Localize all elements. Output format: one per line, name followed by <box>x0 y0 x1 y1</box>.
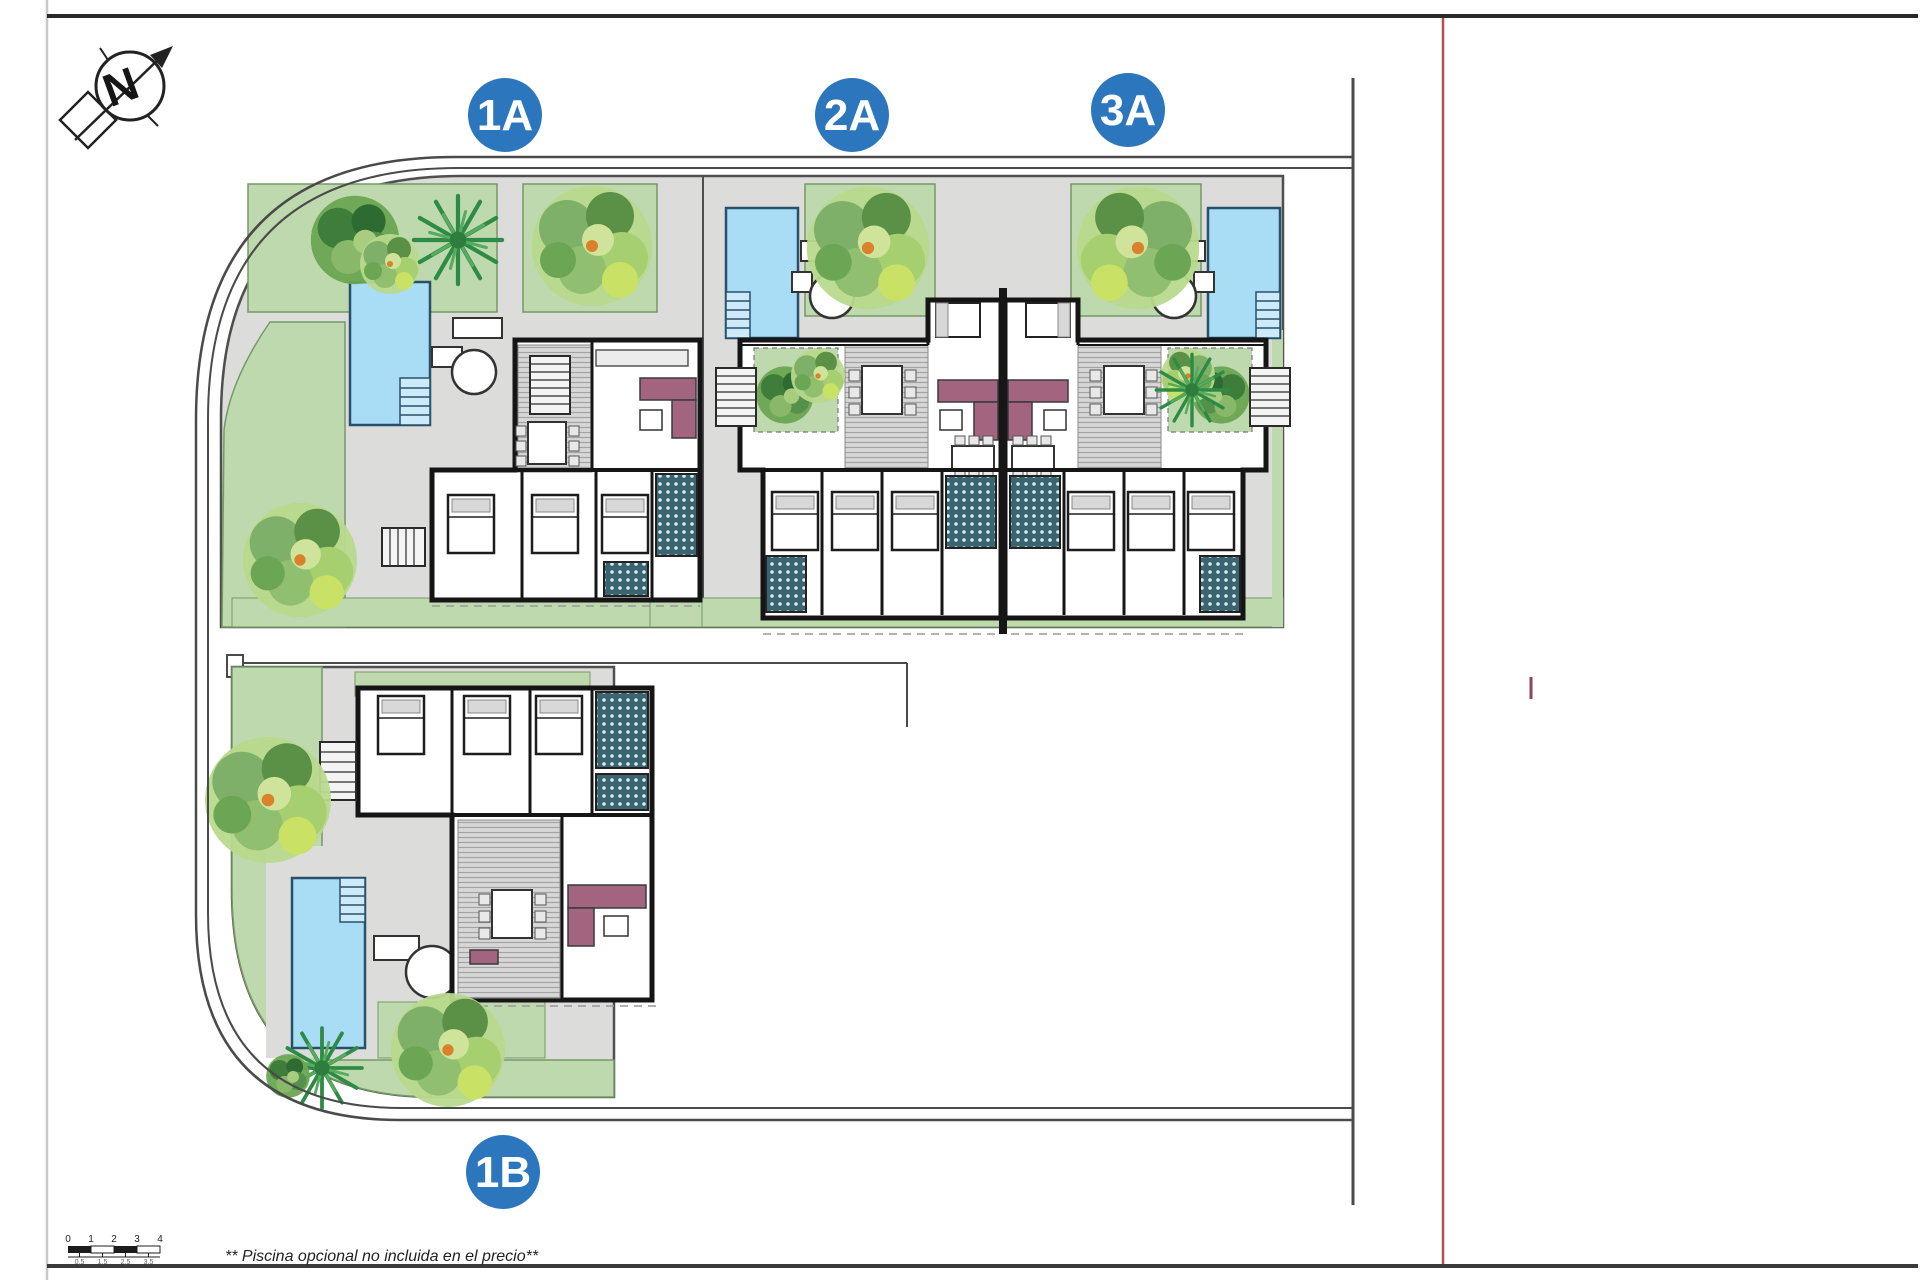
party-wall <box>999 288 1007 634</box>
bed <box>532 495 578 553</box>
round-table <box>452 350 496 394</box>
sofa <box>640 378 696 400</box>
bed <box>448 495 494 553</box>
coffee-table <box>604 916 628 936</box>
bathroom <box>656 474 697 556</box>
bathroom <box>596 692 648 768</box>
unit-badge-1b: 1B <box>466 1135 540 1209</box>
sofa <box>672 400 696 438</box>
tree-icon <box>391 993 505 1107</box>
scale-minor-label: 1,5 <box>98 1259 108 1266</box>
scale-label: 2 <box>111 1234 117 1245</box>
unit-badge-label: 1B <box>475 1148 531 1197</box>
unit-badge-3a: 3A <box>1091 73 1165 147</box>
scale-bar: 0 1 2 3 4 0,5 1,5 2,5 3,5 <box>65 1234 163 1266</box>
scale-label: 1 <box>88 1234 94 1245</box>
scale-label: 4 <box>157 1234 163 1245</box>
disclaimer-note: ** Piscina opcional no incluida en el pr… <box>225 1248 539 1265</box>
site-plan-page: N <box>0 0 1920 1280</box>
tree-icon <box>243 503 357 617</box>
stairs <box>530 356 570 414</box>
unit-badge-1a: 1A <box>468 78 542 152</box>
scale-label: 0 <box>65 1234 71 1245</box>
tree-icon <box>360 234 420 294</box>
bed <box>602 495 648 553</box>
north-arrow-icon: N <box>60 46 173 148</box>
sofa <box>568 908 594 946</box>
site-plan-canvas: N <box>0 0 1920 1280</box>
pool-steps <box>400 378 430 425</box>
sofa <box>568 885 646 908</box>
scale-minor-label: 0,5 <box>75 1259 85 1266</box>
unit-badge-label: 3A <box>1100 86 1156 135</box>
entry-steps <box>382 528 425 566</box>
unit-badge-2a: 2A <box>815 78 889 152</box>
sun-lounger <box>453 318 502 338</box>
dining-table <box>528 422 566 464</box>
bathroom <box>604 562 648 596</box>
tree-icon <box>532 186 652 306</box>
scale-minor-label: 3,5 <box>144 1259 154 1266</box>
bathroom <box>596 774 648 810</box>
unit-badge-label: 2A <box>824 91 880 140</box>
tree-icon <box>205 737 331 863</box>
scale-label: 3 <box>134 1234 140 1245</box>
kitchen-counter <box>596 350 688 366</box>
coffee-table <box>640 410 662 430</box>
bench <box>470 950 498 964</box>
unit-badge-label: 1A <box>477 91 533 140</box>
scale-minor-label: 2,5 <box>121 1259 131 1266</box>
dining-table <box>492 890 532 938</box>
bed <box>464 696 510 754</box>
bed <box>378 696 424 754</box>
pool-steps <box>340 878 365 922</box>
bed <box>536 696 582 754</box>
